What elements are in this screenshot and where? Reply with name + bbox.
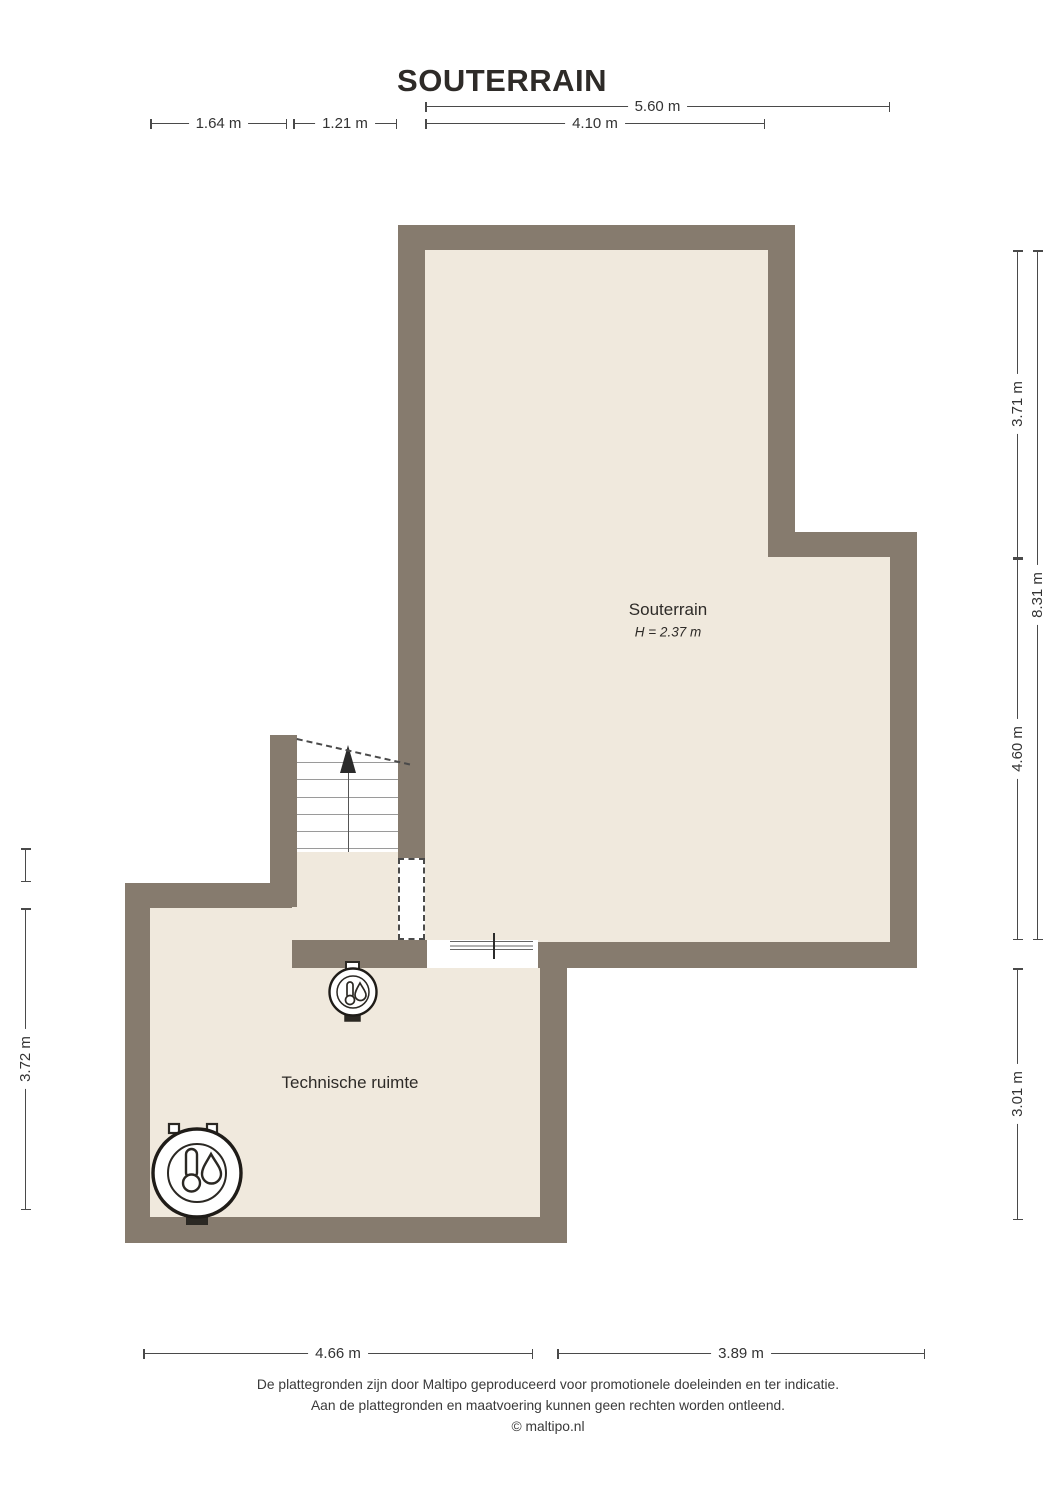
dimension-label: 5.60 m [628, 98, 688, 116]
dimension-label: 3.89 m [711, 1345, 771, 1363]
dimension-right-lower: 3.01 m [1017, 968, 1018, 1220]
dimension-top-inner: 4.10 m [425, 123, 765, 124]
dimension-label: 4.66 m [308, 1345, 368, 1363]
dimension-label: 8.31 m [1029, 565, 1047, 625]
dimension-right-upper: 3.71 m [1017, 250, 1018, 558]
room-label-technische-ruimte: Technische ruimte [281, 1073, 418, 1093]
dimension-top-left-1: 1.64 m [150, 123, 287, 124]
wall-right-upper [768, 225, 795, 557]
dimension-label: 4.60 m [1009, 719, 1027, 779]
dimension-top-total: 5.60 m [425, 106, 890, 107]
wall-opening-dashed [398, 858, 425, 940]
footer-line-2: Aan de plattegronden en maatvoering kunn… [257, 1395, 839, 1416]
footer-line-1: De plattegronden zijn door Maltipo gepro… [257, 1374, 839, 1395]
page-title: SOUTERRAIN [397, 63, 607, 99]
wall-stairs-left [270, 735, 297, 907]
water-heater-boiler-icon [149, 1118, 245, 1228]
room-label-souterrain: Souterrain [629, 600, 707, 620]
wall-tech-right [540, 942, 567, 1243]
dimension-label: 1.21 m [315, 115, 375, 133]
wall-right-lower [890, 532, 917, 968]
cv-boiler-icon [327, 960, 379, 1024]
door-center-tick [493, 933, 495, 959]
wall-tech-left [125, 883, 150, 1243]
dimension-label: 3.71 m [1009, 374, 1027, 434]
dimension-bottom-right: 3.89 m [557, 1353, 925, 1354]
sliding-door-icon [450, 941, 533, 950]
dimension-label: 3.72 m [17, 1029, 35, 1089]
dimension-label: 3.01 m [1009, 1064, 1027, 1124]
wall-tech-top [125, 883, 292, 908]
floor-plan-page: SOUTERRAIN Souterrain H = 2.37 m Technis… [0, 0, 1061, 1500]
dimension-right-total: 8.31 m [1037, 250, 1038, 940]
footer-copyright: © maltipo.nl [257, 1416, 839, 1437]
dimension-label: 1.64 m [189, 115, 249, 133]
dimension-right-middle: 4.60 m [1017, 558, 1018, 940]
room-height-label: H = 2.37 m [635, 625, 701, 640]
footer-disclaimer: De plattegronden zijn door Maltipo gepro… [257, 1374, 839, 1437]
wall-bottom-souterrain [538, 942, 917, 968]
dimension-top-left-2: 1.21 m [293, 123, 397, 124]
dimension-bottom-left: 4.66 m [143, 1353, 533, 1354]
room-floor-souterrain-upper [425, 250, 768, 557]
dimension-left-tech: 3.72 m [25, 908, 26, 1210]
dimension-left-short [25, 848, 26, 882]
stair-direction-line [348, 772, 349, 852]
dimension-label: 4.10 m [565, 115, 625, 133]
wall-top [398, 225, 795, 250]
